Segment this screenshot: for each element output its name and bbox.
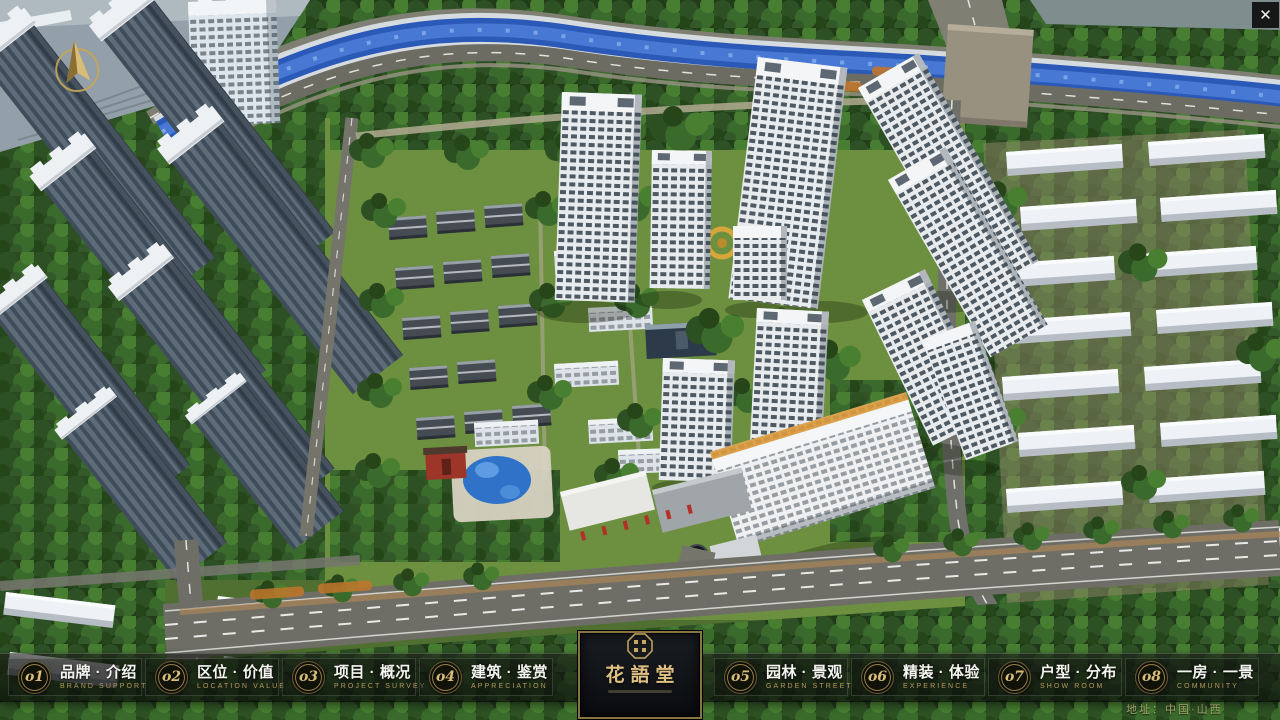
nav-number-badge: o3 (292, 661, 325, 694)
nav-label-cn: 精装 · 体验 (903, 665, 980, 681)
nav-item-architecture[interactable]: o4 建筑 · 鉴赏 APPRECIATION (419, 658, 553, 696)
project-name: 花語堂 (599, 660, 680, 687)
nav-item-brand-intro[interactable]: o1 品牌 · 介绍 BRAND SUPPORT (8, 658, 142, 696)
nav-label-en: PROJECT SURVEY (334, 683, 427, 690)
nav-number-badge: o2 (155, 661, 188, 694)
nav-number-badge: o7 (998, 661, 1031, 694)
nav-label-en: SHOW ROOM (1040, 683, 1117, 690)
nav-number-badge: o4 (429, 661, 462, 694)
compass-north-indicator (48, 34, 106, 98)
nav-item-floorplans[interactable]: o7 户型 · 分布 SHOW ROOM (988, 658, 1122, 696)
site-plan-render[interactable] (0, 0, 1280, 720)
nav-label-en: GARDEN STREET (766, 683, 853, 690)
project-logo-plaque[interactable]: 花語堂 (578, 631, 702, 719)
nav-number-badge: o6 (861, 661, 894, 694)
close-button[interactable]: ✕ (1252, 2, 1279, 28)
nav-label-cn: 建筑 · 鉴赏 (471, 665, 548, 681)
nav-label-cn: 园林 · 景观 (766, 665, 853, 681)
nav-item-location-value[interactable]: o2 区位 · 价值 LOCATION VALUE (145, 658, 279, 696)
nav-label-cn: 一房 · 一景 (1177, 665, 1254, 681)
nav-number-badge: o8 (1135, 661, 1168, 694)
nav-label-cn: 户型 · 分布 (1040, 665, 1117, 681)
nav-label-cn: 品牌 · 介绍 (60, 665, 147, 681)
nav-item-project-overview[interactable]: o3 项目 · 概况 PROJECT SURVEY (282, 658, 416, 696)
project-name-latin-decor (608, 690, 672, 693)
nav-item-room-view[interactable]: o8 一房 · 一景 COMMUNITY (1125, 658, 1259, 696)
nav-item-interior-experience[interactable]: o6 精装 · 体验 EXPERIENCE (851, 658, 985, 696)
nav-label-en: COMMUNITY (1177, 683, 1254, 690)
seal-emblem-icon (627, 633, 653, 659)
app-window: ✕ o1 品牌 · 介绍 BRAND SUPPORT o2 区位 · 价值 LO… (0, 0, 1280, 720)
nav-label-en: APPRECIATION (471, 683, 548, 690)
nav-label-cn: 区位 · 价值 (197, 665, 286, 681)
nav-number-badge: o1 (18, 661, 51, 694)
nav-label-cn: 项目 · 概况 (334, 665, 427, 681)
project-address: 地址：中国·山西 (1126, 701, 1223, 717)
nav-number-badge: o5 (724, 661, 757, 694)
nav-label-en: EXPERIENCE (903, 683, 980, 690)
nav-label-en: BRAND SUPPORT (60, 683, 147, 690)
nav-item-landscape[interactable]: o5 园林 · 景观 GARDEN STREET (714, 658, 848, 696)
nav-label-en: LOCATION VALUE (197, 683, 286, 690)
